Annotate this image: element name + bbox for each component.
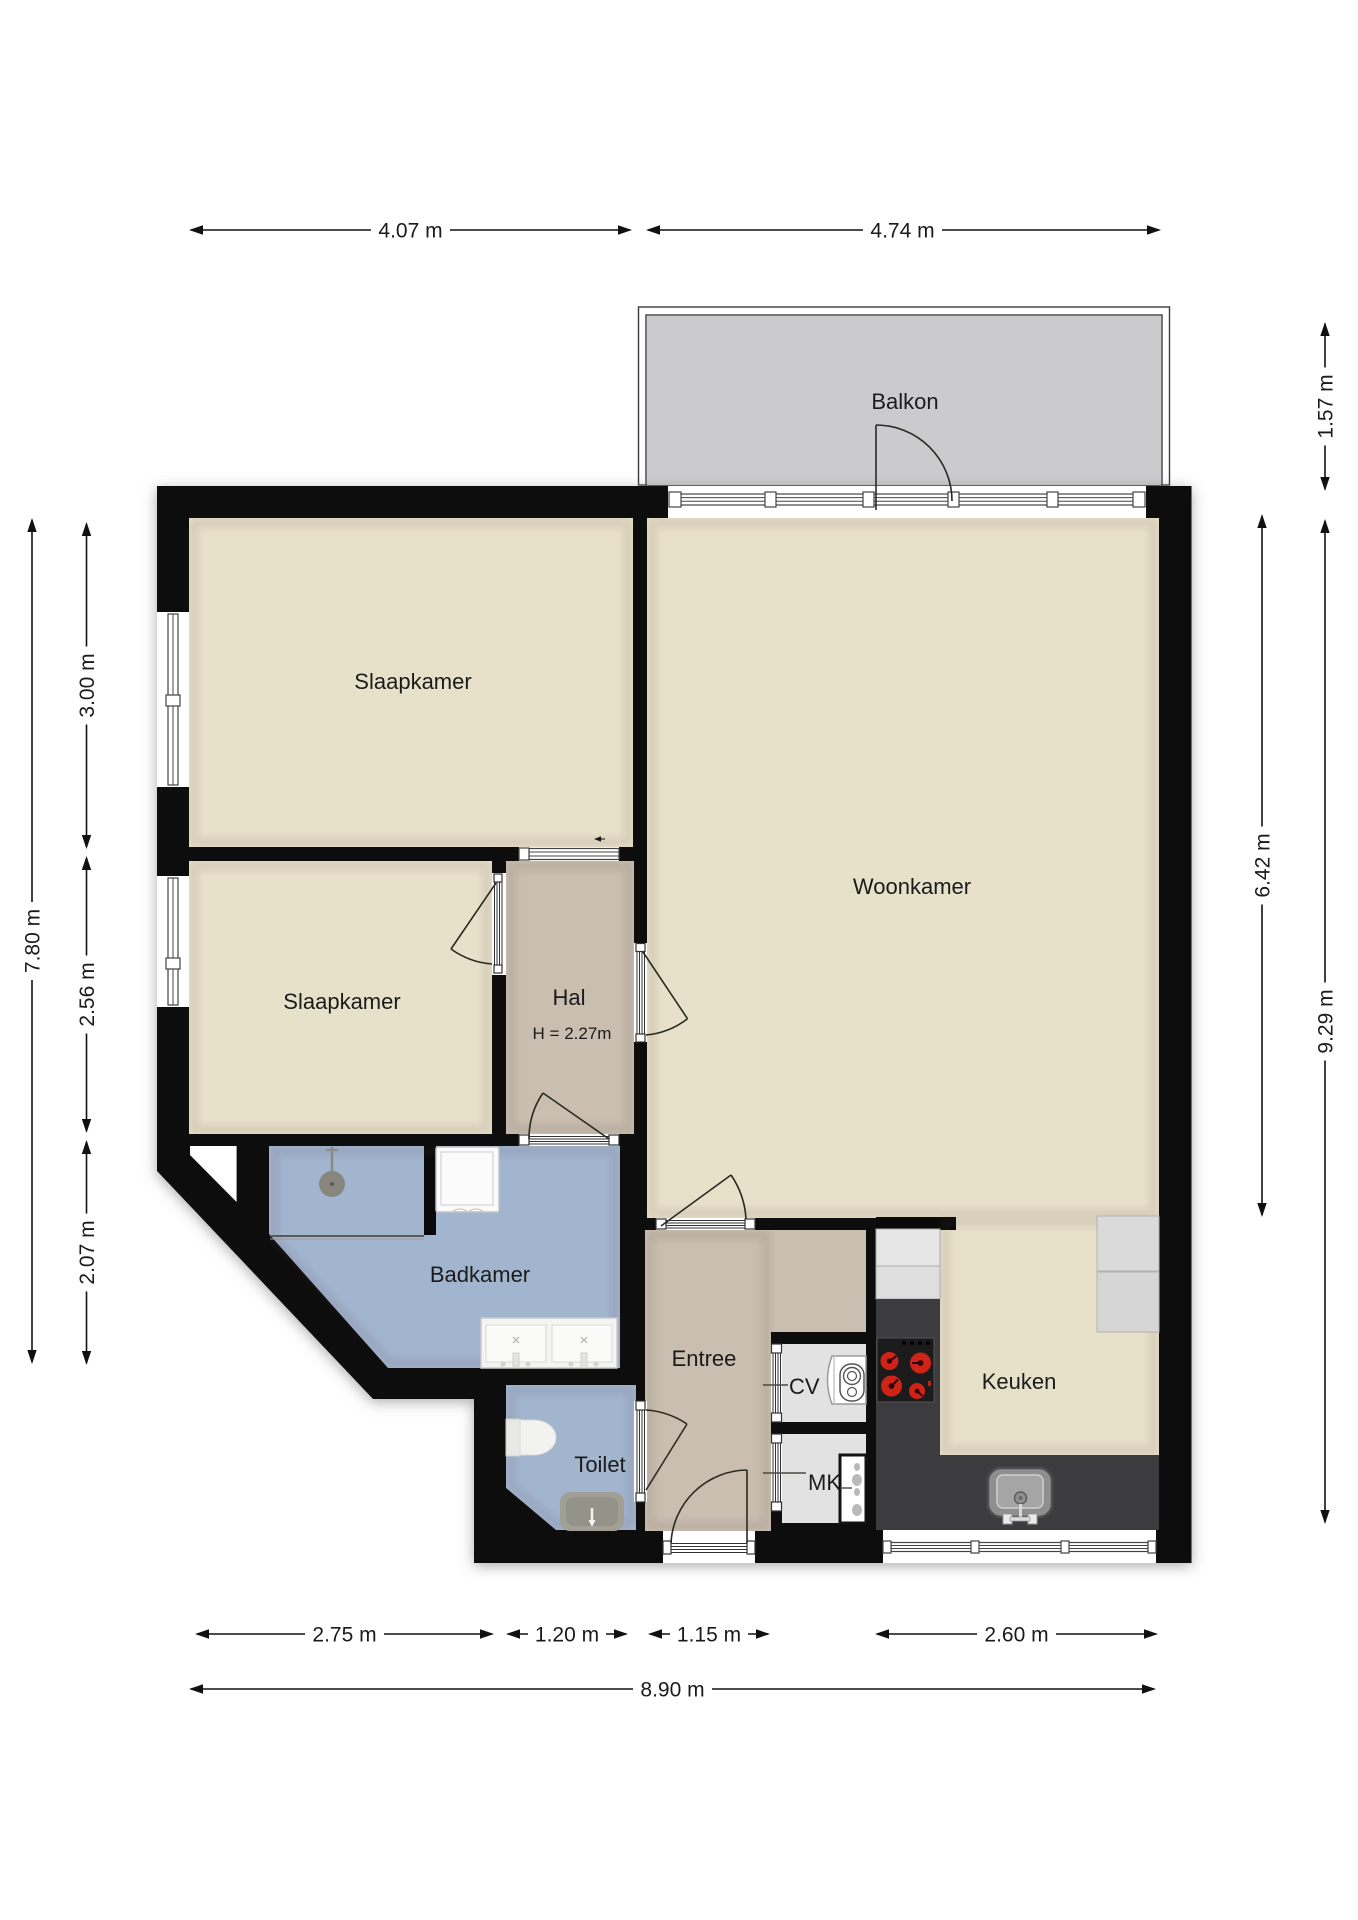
svg-text:2.75 m: 2.75 m — [312, 1624, 376, 1647]
svg-text:Hal: Hal — [552, 985, 585, 1010]
svg-text:7.80 m: 7.80 m — [22, 909, 45, 973]
svg-text:2.56 m: 2.56 m — [76, 962, 99, 1026]
svg-text:Balkon: Balkon — [871, 389, 938, 414]
svg-text:8.90 m: 8.90 m — [640, 1679, 704, 1702]
svg-text:Slaapkamer: Slaapkamer — [354, 669, 471, 694]
svg-text:CV: CV — [789, 1374, 820, 1399]
svg-text:Woonkamer: Woonkamer — [853, 874, 971, 899]
svg-text:2.60 m: 2.60 m — [984, 1624, 1048, 1647]
svg-text:Slaapkamer: Slaapkamer — [283, 989, 400, 1014]
svg-text:9.29 m: 9.29 m — [1315, 989, 1338, 1053]
svg-text:2.07 m: 2.07 m — [76, 1220, 99, 1284]
svg-text:4.74 m: 4.74 m — [870, 220, 934, 243]
svg-text:Badkamer: Badkamer — [430, 1262, 530, 1287]
svg-text:1.57 m: 1.57 m — [1315, 374, 1338, 438]
svg-text:Toilet: Toilet — [574, 1452, 625, 1477]
svg-text:MK: MK — [808, 1470, 841, 1495]
svg-text:6.42 m: 6.42 m — [1252, 833, 1275, 897]
svg-text:Keuken: Keuken — [982, 1369, 1057, 1394]
svg-text:1.20 m: 1.20 m — [535, 1624, 599, 1647]
svg-text:H = 2.27m: H = 2.27m — [533, 1024, 612, 1043]
svg-text:4.07 m: 4.07 m — [378, 220, 442, 243]
svg-text:Entree: Entree — [672, 1346, 737, 1371]
svg-text:3.00 m: 3.00 m — [76, 653, 99, 717]
svg-text:1.15 m: 1.15 m — [677, 1624, 741, 1647]
